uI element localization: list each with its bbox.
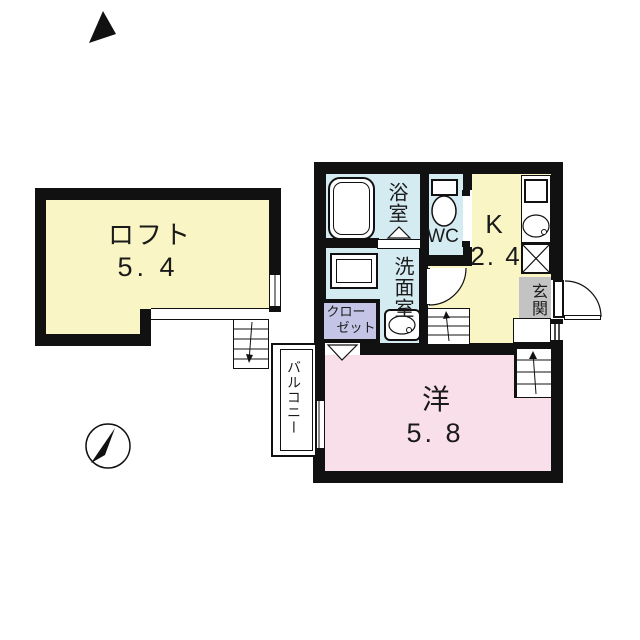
floor-plan: ロフト 5. 4 洋 5. 8 K 2. 4 WC 浴室 洗面室 玄関 バルコニ…	[0, 0, 640, 640]
utility-meter-mark	[551, 324, 563, 340]
bath-door-threshold	[377, 239, 421, 249]
loft-label: ロフト	[90, 221, 210, 250]
loft-size: 5. 4	[88, 253, 208, 283]
kitchen-label: K	[474, 210, 514, 239]
front-door-arc	[565, 281, 601, 317]
front-door-leaf-open	[564, 315, 601, 320]
toilet-right-wall-top	[463, 174, 472, 190]
balcony-label: バルコニー	[287, 360, 301, 452]
bathroom-label: 浴室	[386, 182, 406, 234]
toilet-door-gap	[463, 190, 472, 247]
hall-door-leaf	[426, 268, 433, 305]
loft-wall-left	[35, 188, 46, 346]
western-wall-right	[551, 343, 563, 483]
western-room-size: 5. 8	[395, 419, 475, 449]
washroom-label: 洗面室	[392, 256, 412, 328]
main-wall-top	[314, 162, 563, 174]
kitchen-size: 2. 4	[466, 242, 526, 271]
loft-wall-top	[35, 188, 280, 200]
closet-label-line2: ゼット	[332, 321, 380, 335]
entrance-label: 玄関	[529, 283, 545, 317]
western-wall-bottom	[313, 471, 563, 483]
loft-wall-bottom-left	[35, 334, 151, 346]
pink-stairs-box	[514, 348, 552, 398]
north-arrow-icon	[89, 11, 116, 43]
entrance-step	[513, 318, 551, 343]
compass-circle	[86, 424, 130, 468]
bathtub-inner	[333, 182, 370, 235]
closet-label-line1: クロー	[322, 305, 370, 319]
toilet-label: WC	[424, 227, 462, 248]
loft-wall-step	[140, 309, 151, 346]
loft-window	[269, 274, 281, 307]
washer-pan-inner	[336, 259, 372, 283]
closet-door-gap	[325, 343, 360, 355]
kitchen-counter-square	[524, 179, 548, 203]
western-room-label: 洋	[406, 385, 466, 416]
loft-ladder-box	[233, 319, 269, 369]
compass-needle	[91, 428, 115, 463]
front-door-leaf	[553, 280, 564, 318]
toilet-tank-icon	[431, 179, 458, 196]
hall-stairs-box	[427, 308, 470, 345]
